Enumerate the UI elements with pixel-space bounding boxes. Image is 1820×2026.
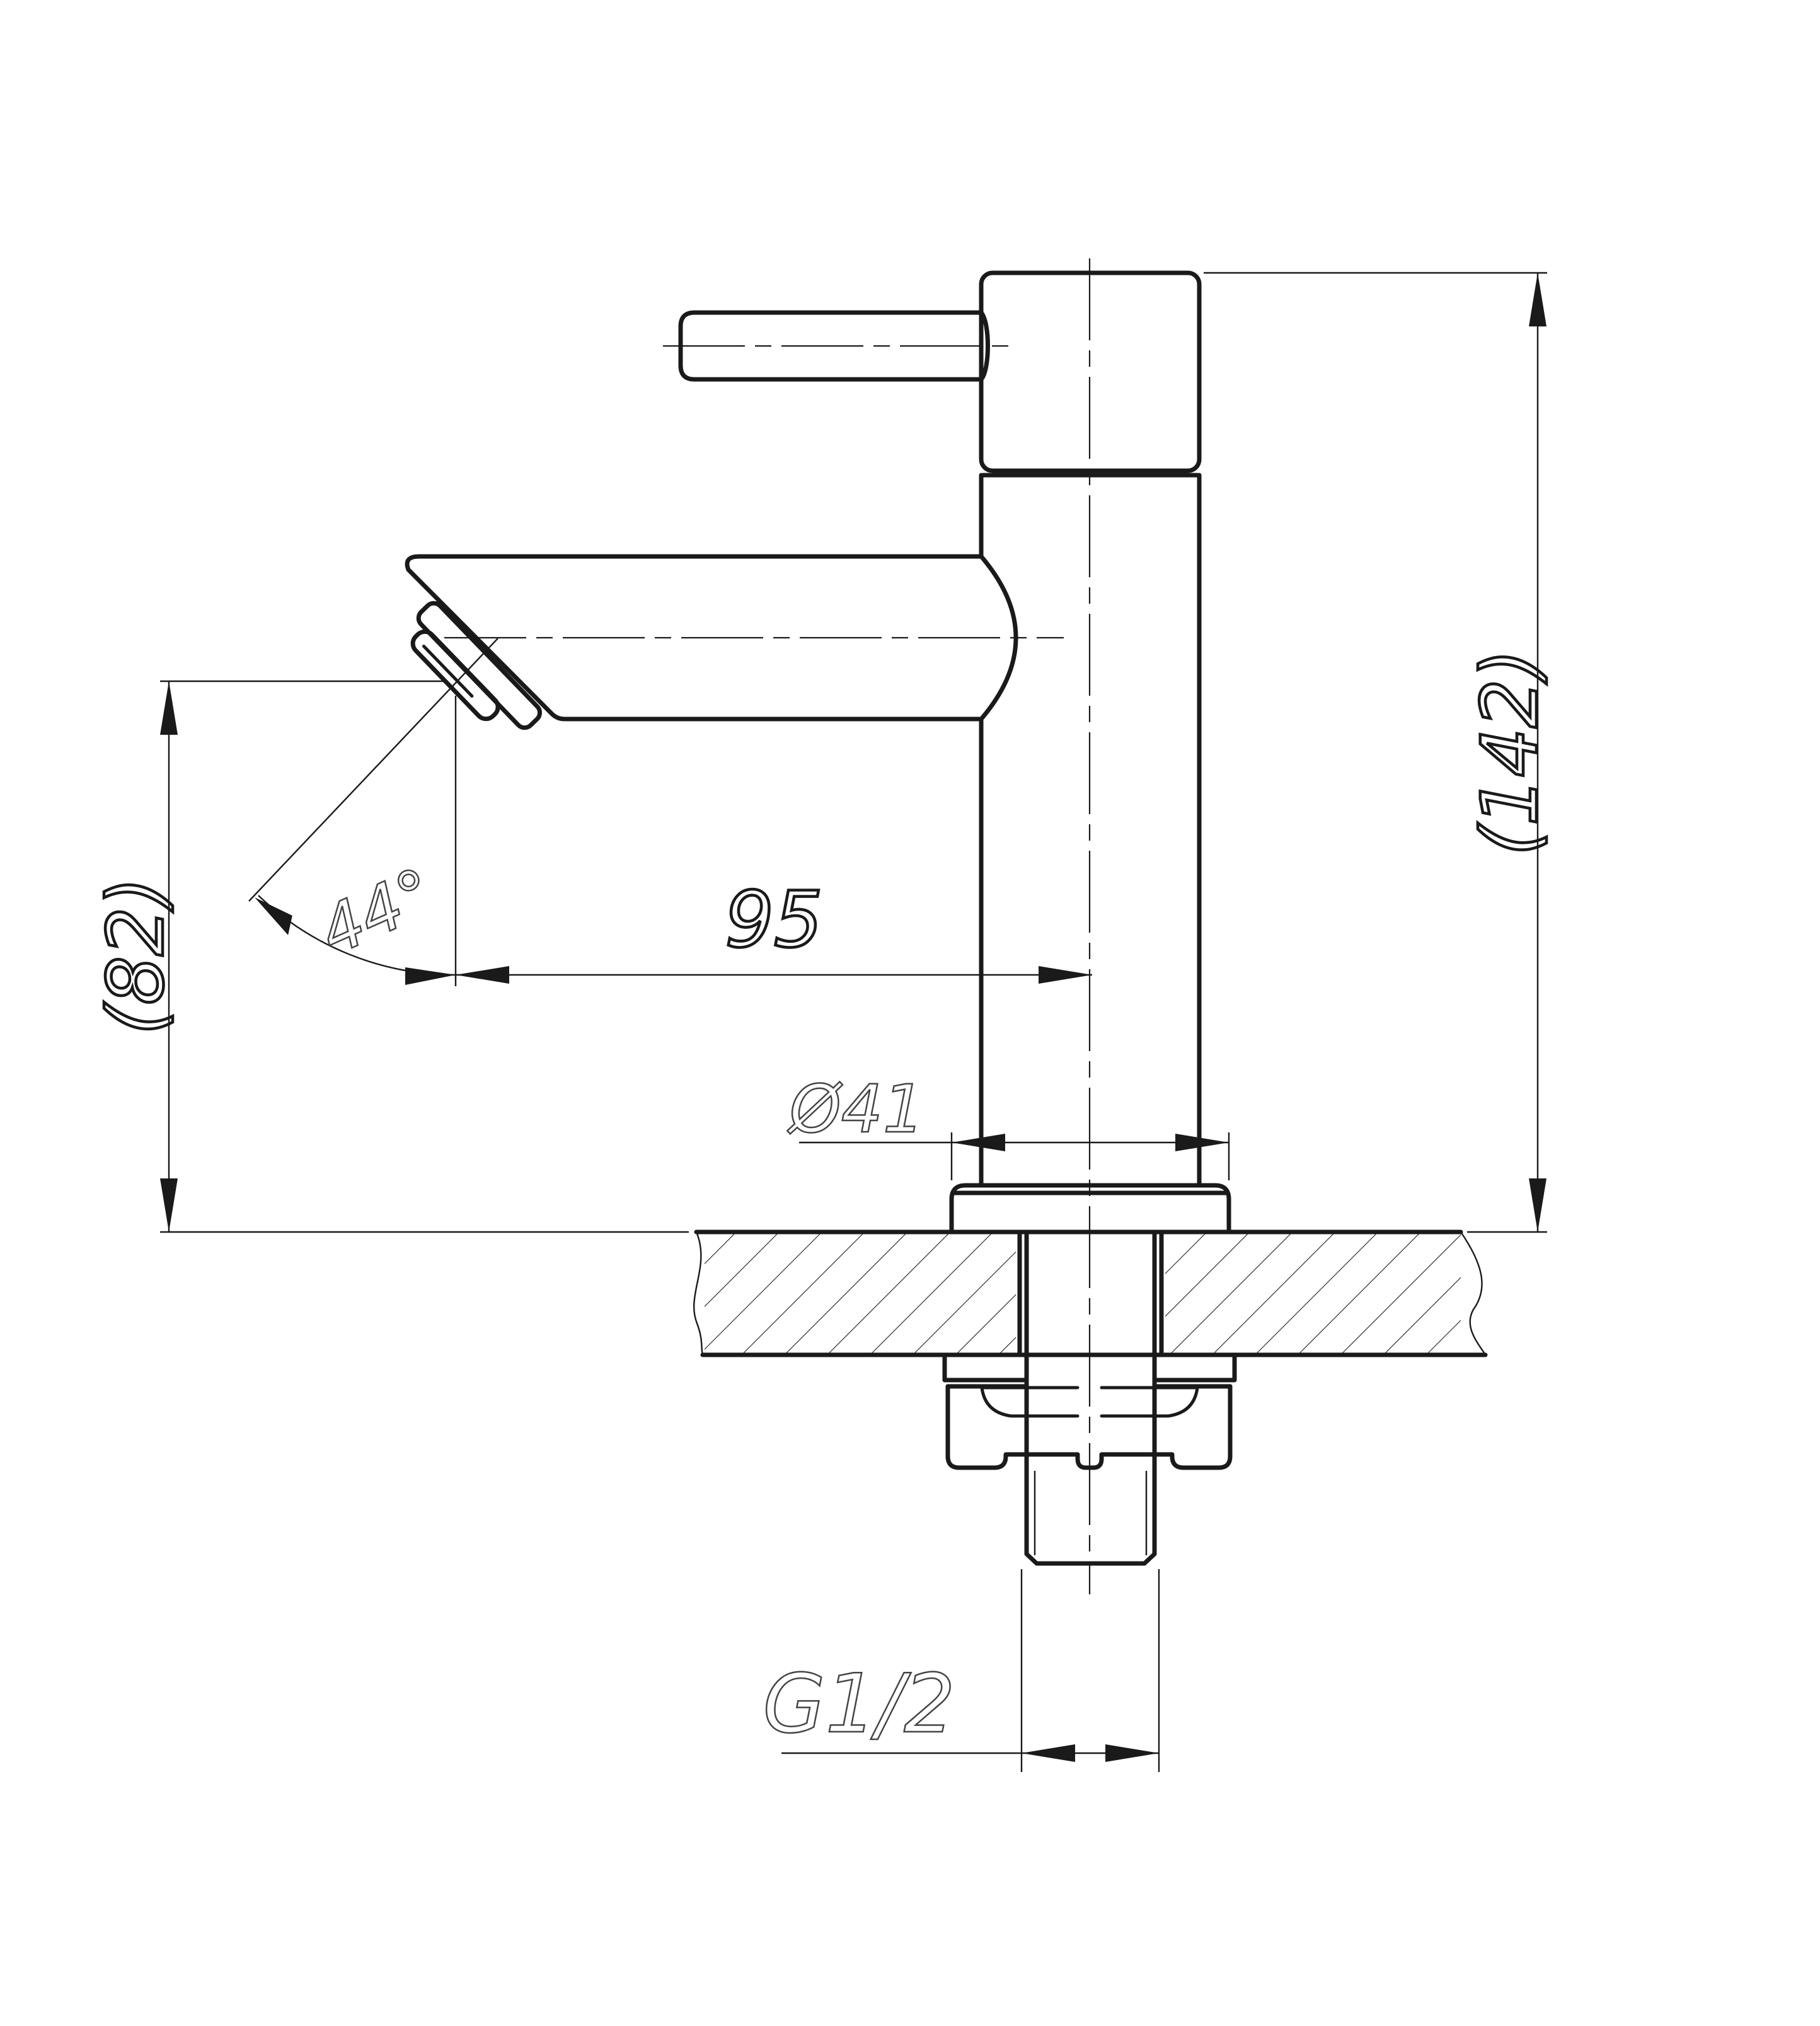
dimg12-arrow-left [1022, 1744, 1075, 1762]
dim82-arrow-bottom [160, 1178, 178, 1232]
dim-thread-size: G1/2 [763, 1569, 1159, 1772]
dim95-arrow-left [456, 966, 509, 984]
faucet-dimension-drawing: (142) (82) 95 44° Ø41 [0, 0, 1820, 2026]
dim-outlet-height: (82) [91, 681, 689, 1232]
dim142-arrow-top [1529, 273, 1546, 326]
dim41-arrow-left [952, 1134, 1005, 1151]
dim44-arrow-lower [405, 967, 456, 985]
handle-lever [663, 313, 1008, 379]
shank-walls [1027, 1232, 1155, 1563]
technical-drawing-page: (142) (82) 95 44° Ø41 [0, 0, 1820, 2026]
dim41-arrow-right [1175, 1134, 1229, 1151]
dim142-label: (142) [1465, 649, 1555, 856]
dim-flange-diameter: Ø41 [787, 1071, 1229, 1180]
aerator [399, 599, 543, 746]
countertop-hatch-left [705, 1234, 1016, 1354]
dim-spout-reach: 95 [456, 696, 1092, 986]
dim82-arrow-top [160, 681, 178, 735]
dim-overall-height: (142) [1204, 273, 1555, 1232]
dimg12-arrow-right [1105, 1744, 1159, 1762]
dim142-arrow-bottom [1529, 1178, 1546, 1232]
countertop-right-break-line [1461, 1232, 1485, 1355]
dim95-arrow-right [1039, 966, 1092, 984]
spout [407, 556, 1064, 719]
dim44-arrow-upper [254, 887, 301, 935]
dim44-angle-leg [249, 638, 498, 901]
dim95-label: 95 [725, 875, 822, 965]
dimg12-label: G1/2 [763, 1657, 955, 1751]
threaded-shank [1027, 1232, 1155, 1563]
dim44-label: 44° [308, 853, 446, 970]
shank-thread-lines [1035, 1471, 1146, 1555]
dim-outlet-angle: 44° [249, 638, 498, 985]
countertop-left-break-line [694, 1232, 703, 1355]
dim82-label: (82) [91, 877, 181, 1035]
countertop-hatch-right [1165, 1234, 1461, 1354]
dim41-label: Ø41 [787, 1071, 924, 1148]
deck-hole-edges [1020, 1232, 1161, 1355]
aerator-collar [415, 599, 543, 731]
